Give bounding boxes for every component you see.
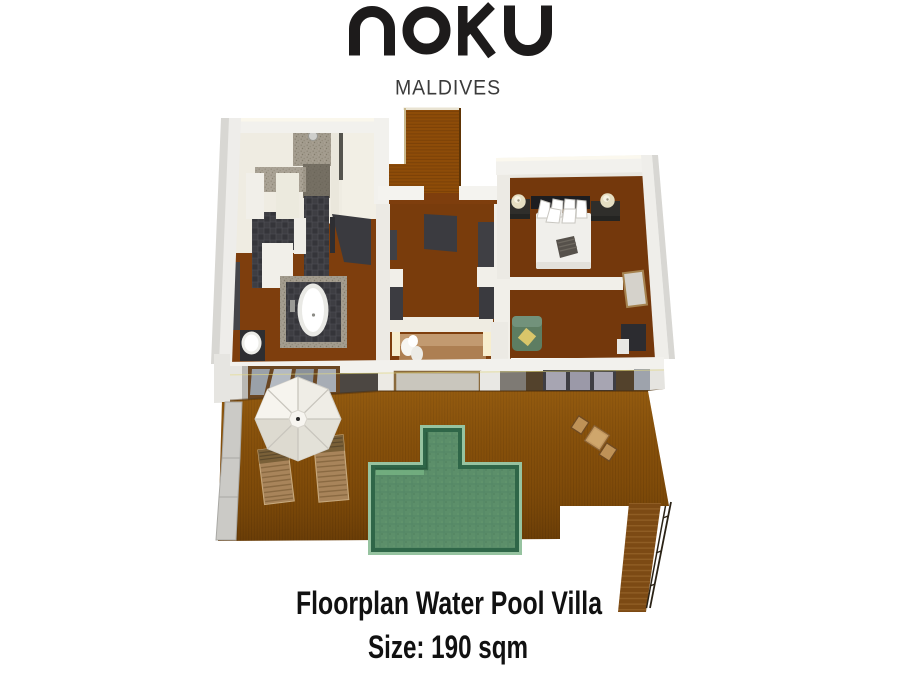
svg-text:Size: 190 sqm: Size: 190 sqm: [368, 629, 528, 665]
svg-text:MALDIVES: MALDIVES: [395, 77, 501, 100]
svg-text:Floorplan Water Pool Villa: Floorplan Water Pool Villa: [296, 585, 602, 621]
